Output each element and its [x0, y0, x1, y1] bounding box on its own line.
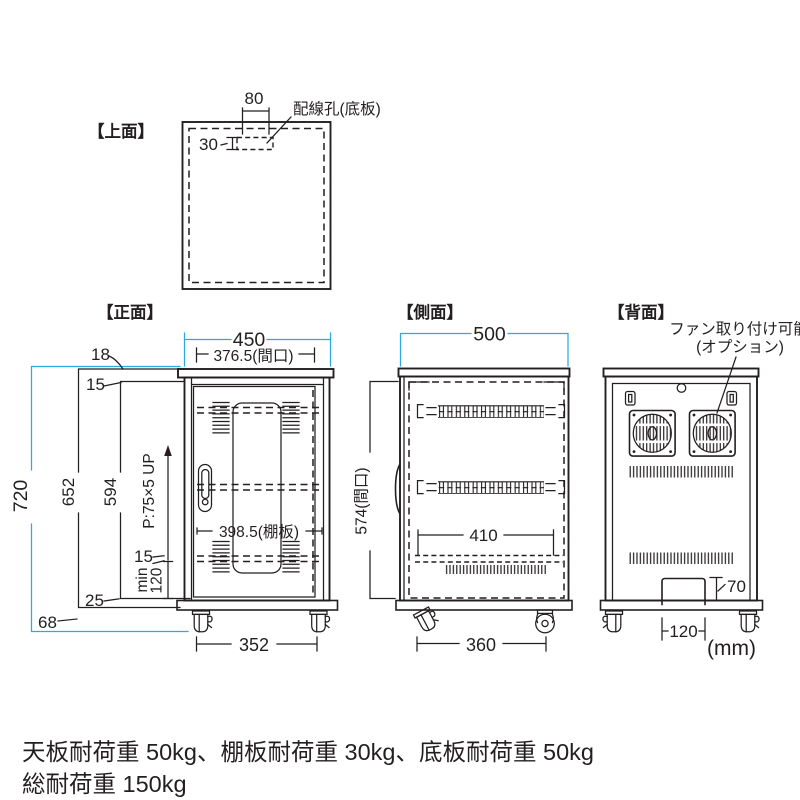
fan-note-line2: (オプション) — [696, 338, 784, 356]
shelf-depth-value: 410 — [469, 526, 497, 545]
front-top-panel — [178, 369, 334, 378]
front-caster-span-dimension: 352 — [197, 635, 318, 655]
side-caster-span-dimension: 360 — [417, 635, 546, 655]
back-latch-left — [626, 392, 636, 406]
back-base-plate — [601, 601, 763, 611]
load-capacity-notes: 天板耐荷重 50kg、棚板耐荷重 30kg、底板耐荷重 50kg 総耐荷重 15… — [22, 739, 594, 797]
fan-note-line1: ファン取り付け可能 — [669, 320, 800, 338]
load-note: 天板耐荷重 50kg、棚板耐荷重 30kg、底板耐荷重 50kg — [22, 739, 594, 765]
overall-depth-dimension: 500 — [401, 324, 569, 367]
front-caster-span-value: 352 — [239, 635, 269, 655]
total-load-note: 総耐荷重 150kg — [22, 771, 187, 797]
caster-front-right — [310, 611, 330, 632]
hole-width-dimension: 80 — [243, 89, 270, 134]
back-vent-row-lower — [629, 553, 734, 565]
top-clearance-value: 15 — [86, 375, 105, 394]
side-base-plate — [396, 601, 572, 611]
back-top-panel — [604, 369, 759, 377]
slot-hatch-bottom-right — [283, 542, 299, 572]
back-vent-row-upper — [629, 466, 734, 478]
side-view-title: 【側面】 — [397, 302, 463, 322]
hole-depth-dimension: 30 — [199, 135, 239, 154]
shelf-width-dimension: 398.5(棚板) — [197, 523, 322, 541]
front-base-plate — [177, 601, 338, 611]
caster-back-left — [603, 611, 623, 632]
front-view-title: 【正面】 — [97, 303, 163, 322]
back-view: 【背面】 ファン取り付け可能 (オプション) 70 — [601, 302, 800, 660]
cutout-width-dimension: 120 — [662, 618, 705, 641]
spec-drawing-page: 【上面】 80 30 配線孔(底板) 【正面】 450 376.5(間口) — [0, 0, 800, 800]
side-corner-brackets — [409, 382, 564, 390]
back-view-title: 【背面】 — [608, 302, 674, 322]
body-height-value: 652 — [59, 478, 78, 506]
opening-height-value: 574(間口) — [354, 467, 371, 534]
shelf-depth-dimension: 410 — [418, 526, 554, 555]
side-bottom-vent — [444, 565, 546, 574]
dimension-drawing: 【上面】 80 30 配線孔(底板) 【正面】 450 376.5(間口) — [0, 0, 800, 800]
opening-width-dimension: 376.5(間口) — [197, 348, 315, 365]
wiring-hole-leader — [267, 117, 291, 143]
side-shelf-rail-top — [418, 405, 565, 418]
opening-height-dimension: 574(間口) — [354, 382, 399, 599]
door-lock-icon — [202, 499, 208, 505]
hole-width-value: 80 — [245, 89, 264, 108]
caster-back-right — [740, 611, 760, 632]
bottom-clearance-value: 25 — [85, 591, 104, 610]
units-label: (mm) — [707, 637, 756, 660]
door-handle — [199, 465, 212, 512]
top-view-title: 【上面】 — [88, 122, 154, 141]
cutout-height-value: 70 — [727, 577, 746, 596]
wiring-hole-label: 配線孔(底板) — [293, 100, 381, 118]
interior-height-value: 594 — [101, 478, 120, 506]
front-door-window — [233, 403, 281, 573]
cutout-height-dimension: 70 — [710, 577, 746, 599]
front-body-outline — [185, 378, 330, 601]
top-panel-value: 18 — [91, 345, 110, 364]
min-height-value: 120 — [149, 567, 166, 593]
slot-hatch-bottom-left — [213, 542, 229, 572]
shelf-clearance-value: 15 — [134, 547, 153, 566]
side-caster-span-value: 360 — [466, 635, 496, 655]
overall-depth-value: 500 — [473, 324, 506, 346]
top-view: 【上面】 80 30 配線孔(底板) — [88, 89, 381, 289]
hole-depth-value: 30 — [199, 135, 218, 154]
wiring-hole-outline — [237, 138, 273, 150]
caster-height-value: 68 — [38, 613, 57, 632]
overall-height-value: 720 — [10, 480, 32, 513]
caster-side-right — [536, 610, 555, 633]
side-view: 【側面】 500 410 574(間口) — [354, 302, 573, 655]
shelf-pitch-value: P:75×5 UP — [141, 453, 158, 528]
side-bottom-dashed — [415, 556, 563, 563]
up-arrow-icon — [164, 445, 172, 456]
fan-grille-right — [690, 411, 736, 457]
caster-front-left — [193, 611, 213, 632]
back-top-hole — [677, 384, 686, 393]
cutout-width-value: 120 — [669, 622, 697, 641]
front-view: 【正面】 450 376.5(間口) — [10, 303, 338, 655]
shelf-pitch-annotation: P:75×5 UP — [141, 445, 172, 560]
shelf-width-value: 398.5(棚板) — [219, 523, 299, 541]
side-top-panel — [399, 369, 570, 377]
side-shelf-rail-middle — [418, 481, 565, 494]
fan-grille-left — [630, 411, 676, 457]
opening-width-value: 376.5(間口) — [213, 348, 293, 365]
back-body-outline — [606, 377, 758, 601]
height-dimensions: 720 652 594 18 15 25 68 15 min 120 — [10, 345, 190, 632]
back-latch-right — [727, 392, 737, 406]
